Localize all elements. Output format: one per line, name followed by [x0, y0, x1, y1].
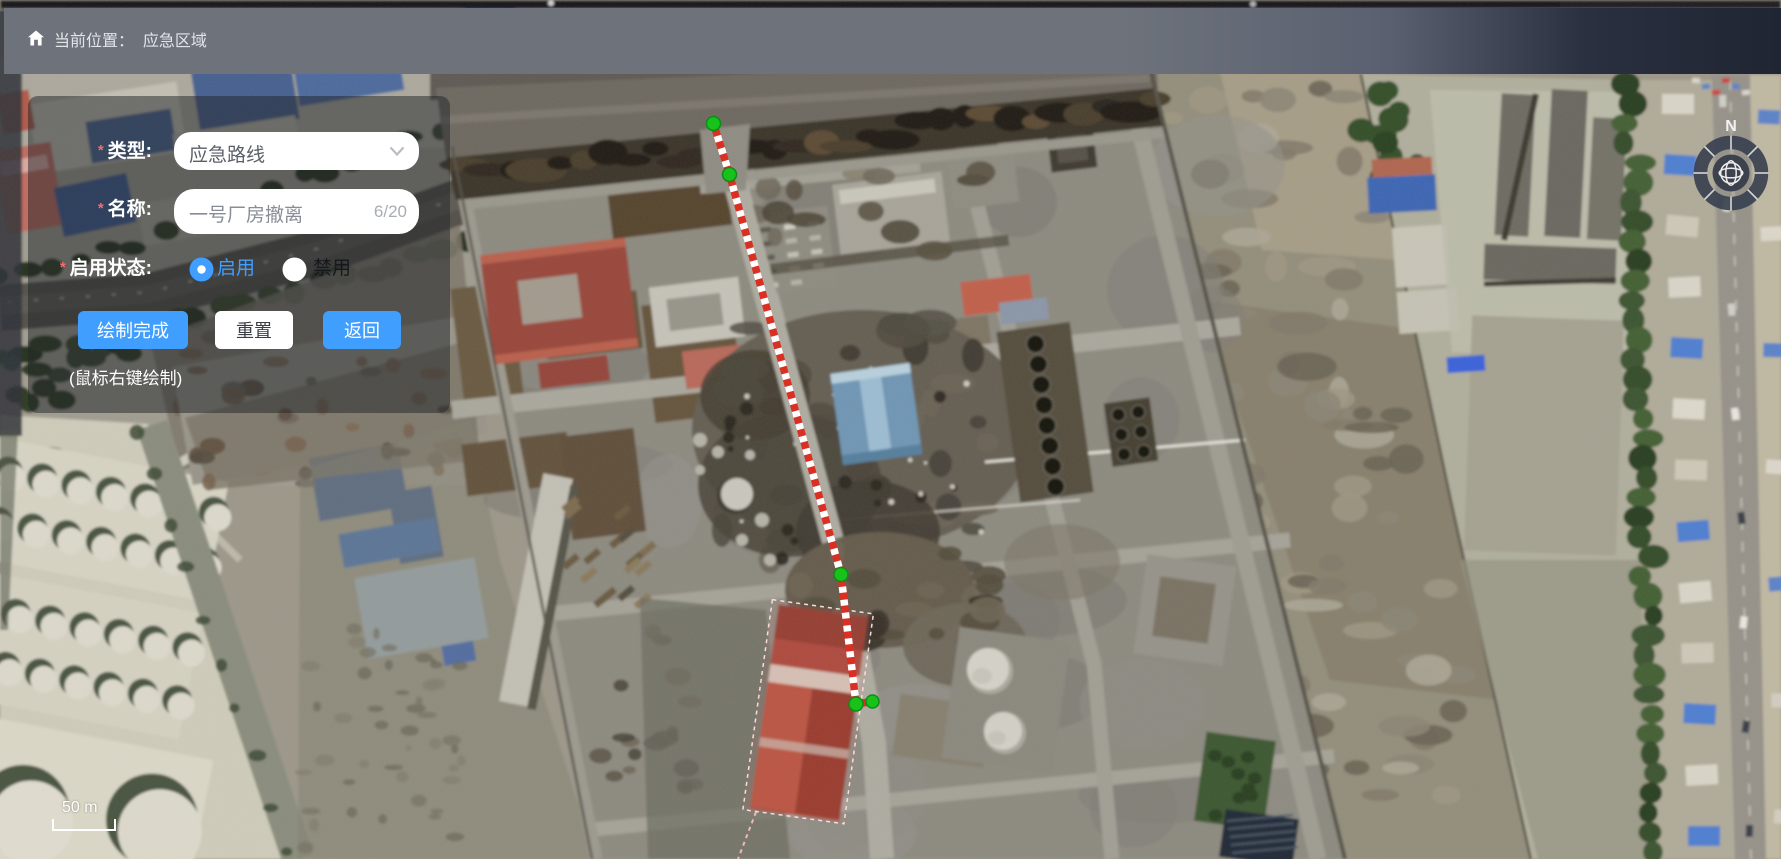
svg-text:N: N [1725, 118, 1737, 135]
